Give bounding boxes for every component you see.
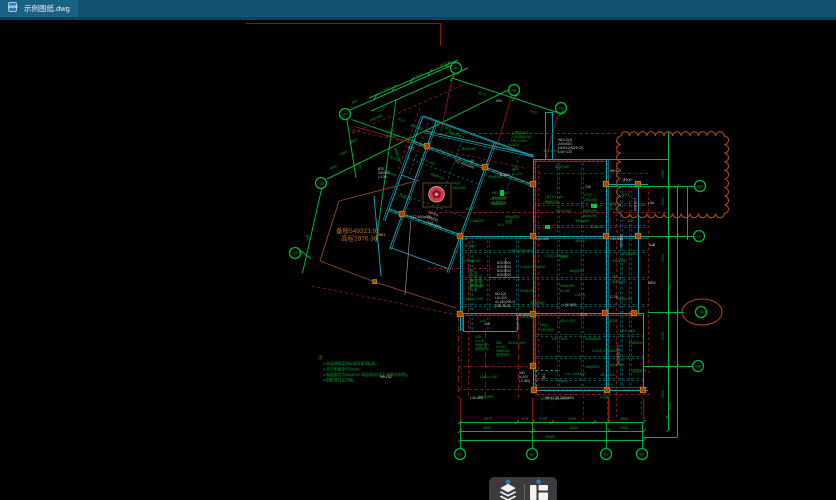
svg-text:2901: 2901 bbox=[661, 390, 665, 398]
svg-text:1500: 1500 bbox=[568, 417, 576, 421]
svg-text:决500: 决500 bbox=[622, 177, 632, 182]
svg-text:300x600: 300x600 bbox=[386, 134, 400, 138]
svg-text:4D: 4D bbox=[558, 106, 563, 111]
svg-text:B25: B25 bbox=[610, 319, 616, 323]
svg-text:240x450: 240x450 bbox=[452, 186, 466, 190]
svg-text:B8@180: B8@180 bbox=[462, 147, 476, 151]
svg-text:4873: 4873 bbox=[478, 91, 487, 97]
svg-text:1500: 1500 bbox=[339, 150, 348, 157]
svg-text:(-0.080): (-0.080) bbox=[519, 379, 530, 383]
svg-text:WKL: WKL bbox=[610, 169, 618, 173]
svg-text:4.阴影部分见详图。: 4.阴影部分见详图。 bbox=[323, 378, 357, 383]
svg-text:B-150: B-150 bbox=[465, 244, 475, 248]
svg-text:LB h=100: LB h=100 bbox=[620, 329, 636, 333]
svg-text:L6(2) 240x400: L6(2) 240x400 bbox=[510, 249, 533, 253]
svg-text:LB1 h=100: LB1 h=100 bbox=[545, 195, 563, 199]
svg-text:4F: 4F bbox=[454, 66, 459, 71]
svg-text:WKL1(5) 300x600: WKL1(5) 300x600 bbox=[545, 396, 574, 400]
svg-text:L-9: L-9 bbox=[628, 219, 633, 223]
svg-text:L5(1): L5(1) bbox=[452, 181, 460, 185]
svg-text:Φ8@180: Φ8@180 bbox=[575, 219, 590, 223]
svg-text:双层双向: 双层双向 bbox=[475, 346, 489, 351]
svg-text:Φ8@200: Φ8@200 bbox=[505, 215, 520, 219]
svg-text:B-600: B-600 bbox=[500, 173, 510, 177]
svg-text:5M: 5M bbox=[695, 364, 701, 369]
svg-text:备移549323.92: 备移549323.92 bbox=[336, 226, 380, 235]
svg-text:WB2: WB2 bbox=[648, 281, 656, 285]
svg-text:2905: 2905 bbox=[661, 332, 665, 340]
svg-text:240: 240 bbox=[585, 185, 591, 189]
svg-text:WKL5: WKL5 bbox=[575, 239, 585, 243]
svg-text:3.板配筋均为Φ8@200 双层双向(详见 结构总说明)。: 3.板配筋均为Φ8@200 双层双向(详见 结构总说明)。 bbox=[323, 372, 411, 377]
svg-text:L-5: L-5 bbox=[638, 203, 643, 207]
svg-text:1.本层结构梁顶标高同板顶标高。: 1.本层结构梁顶标高同板顶标高。 bbox=[323, 361, 379, 366]
svg-text:L10(3) 300x600: L10(3) 300x600 bbox=[520, 265, 545, 269]
svg-text:5417: 5417 bbox=[530, 109, 539, 115]
svg-text:L11 240x450: L11 240x450 bbox=[565, 372, 586, 376]
svg-text:Φ25: Φ25 bbox=[622, 193, 629, 197]
svg-text:250x500: 250x500 bbox=[584, 198, 598, 202]
svg-text:Φ8@150: Φ8@150 bbox=[430, 172, 445, 181]
svg-text:Φ10@200: Φ10@200 bbox=[508, 341, 525, 345]
svg-text:Q6: Q6 bbox=[318, 181, 324, 186]
svg-text:B2: B2 bbox=[530, 452, 536, 457]
svg-text:975: 975 bbox=[522, 417, 528, 421]
svg-text:KL8: KL8 bbox=[466, 207, 472, 211]
svg-text:L7(2): L7(2) bbox=[584, 193, 592, 197]
svg-text:B4: B4 bbox=[640, 452, 646, 457]
svg-text:L40-600: L40-600 bbox=[470, 396, 483, 400]
svg-text:LB h=100: LB h=100 bbox=[560, 319, 576, 323]
svg-text:h=100: h=100 bbox=[560, 289, 570, 293]
svg-text:240x500: 240x500 bbox=[619, 234, 623, 248]
svg-text:(240x240): (240x240) bbox=[426, 220, 442, 229]
svg-text:L12(2) 250x500: L12(2) 250x500 bbox=[592, 349, 617, 353]
svg-text:h=110: h=110 bbox=[610, 207, 620, 211]
svg-text:双层双向: 双层双向 bbox=[492, 200, 507, 205]
svg-text:LB2: LB2 bbox=[610, 202, 616, 206]
svg-text:LB4: LB4 bbox=[612, 275, 618, 279]
svg-text:B1: B1 bbox=[458, 452, 464, 457]
svg-text:C-25: C-25 bbox=[610, 295, 618, 299]
svg-text:Φ8@200: Φ8@200 bbox=[479, 275, 483, 288]
svg-text:1E: 1E bbox=[697, 234, 702, 239]
svg-text:LB2 h=110: LB2 h=110 bbox=[466, 297, 483, 301]
svg-text:L8a: L8a bbox=[648, 201, 654, 205]
svg-text:2900: 2900 bbox=[620, 426, 628, 430]
svg-text:1903: 1903 bbox=[661, 254, 665, 262]
svg-text:B8@200: B8@200 bbox=[590, 225, 604, 229]
svg-text:L40-600: L40-600 bbox=[536, 237, 549, 241]
svg-text:C8@200: C8@200 bbox=[470, 219, 484, 223]
svg-text:LB1: LB1 bbox=[512, 167, 518, 171]
svg-text:Φ8@180: Φ8@180 bbox=[612, 280, 627, 284]
svg-text:800: 800 bbox=[305, 234, 310, 241]
svg-text:Φ25: Φ25 bbox=[580, 313, 587, 317]
svg-text:L-8: L-8 bbox=[649, 243, 654, 247]
svg-text:LB h=120: LB h=120 bbox=[600, 373, 616, 377]
svg-text:LB h=100: LB h=100 bbox=[556, 209, 572, 213]
svg-text:8900: 8900 bbox=[570, 426, 578, 430]
svg-text:4E: 4E bbox=[512, 88, 517, 93]
svg-text:KZ2 600x600: KZ2 600x600 bbox=[410, 215, 431, 219]
svg-text:2903: 2903 bbox=[668, 402, 672, 410]
svg-text:L9(2): L9(2) bbox=[540, 323, 548, 327]
svg-text:Φ8@160: Φ8@160 bbox=[622, 252, 637, 256]
svg-text:20400: 20400 bbox=[545, 435, 556, 439]
svg-text:Φ8@200: Φ8@200 bbox=[628, 341, 643, 345]
svg-text:B8@200: B8@200 bbox=[570, 269, 584, 273]
svg-text:Φ8@150 B150: Φ8@150 B150 bbox=[474, 271, 478, 292]
svg-text:L1(3): L1(3) bbox=[386, 129, 394, 133]
svg-text:4575: 4575 bbox=[484, 417, 492, 421]
svg-text:Φ8@160: Φ8@160 bbox=[466, 259, 481, 263]
svg-text:B8@180: B8@180 bbox=[555, 165, 569, 169]
svg-text:L40: L40 bbox=[468, 159, 474, 163]
svg-text:h=120: h=120 bbox=[512, 172, 522, 176]
svg-text:L40+120: L40+120 bbox=[558, 150, 572, 154]
svg-text:WKL: WKL bbox=[378, 233, 386, 237]
svg-text:B-8: B-8 bbox=[498, 223, 504, 227]
svg-text:L-1: L-1 bbox=[462, 237, 467, 241]
svg-text:9600: 9600 bbox=[483, 426, 491, 430]
svg-text:2A: 2A bbox=[699, 310, 704, 315]
svg-text:注:: 注: bbox=[318, 354, 324, 361]
svg-text:L11(2): L11(2) bbox=[575, 293, 585, 297]
svg-text:1-Φ25@200: 1-Φ25@200 bbox=[616, 345, 620, 365]
svg-text:5417: 5417 bbox=[668, 282, 672, 290]
svg-text:240x400: 240x400 bbox=[369, 114, 383, 123]
svg-text:Φ8@180: Φ8@180 bbox=[612, 259, 627, 263]
svg-text:B8@200: B8@200 bbox=[545, 200, 559, 204]
svg-text:双层双向: 双层双向 bbox=[496, 352, 510, 357]
svg-text:Φ8@200 B200: Φ8@200 B200 bbox=[469, 269, 473, 290]
svg-text:B25 B200: B25 B200 bbox=[497, 273, 511, 277]
svg-text:B3: B3 bbox=[604, 452, 610, 457]
svg-text:双层双向: 双层双向 bbox=[632, 368, 647, 373]
svg-text:L13(1): L13(1) bbox=[558, 379, 568, 383]
svg-text:550: 550 bbox=[496, 99, 502, 103]
svg-text:L1(2): L1(2) bbox=[377, 106, 386, 113]
svg-text:Φ8@200: Φ8@200 bbox=[530, 301, 545, 305]
svg-text:Φ10@180: Φ10@180 bbox=[585, 337, 602, 341]
svg-text:Φ8@200: Φ8@200 bbox=[585, 365, 600, 369]
svg-text:XB1: XB1 bbox=[542, 374, 546, 380]
svg-text:(300-2040): (300-2040) bbox=[495, 304, 511, 308]
svg-text:双层: 双层 bbox=[505, 219, 513, 224]
svg-text:Q5: Q5 bbox=[292, 251, 298, 256]
svg-text:L40-600: L40-600 bbox=[563, 303, 576, 307]
svg-text:B8@200: B8@200 bbox=[583, 214, 597, 218]
svg-text:2700: 2700 bbox=[539, 417, 547, 421]
svg-text:2900: 2900 bbox=[661, 170, 665, 178]
svg-text:2901: 2901 bbox=[661, 197, 665, 205]
svg-text:KL5(2): KL5(2) bbox=[508, 143, 519, 147]
svg-text:Φ8@200: Φ8@200 bbox=[560, 284, 575, 288]
svg-text:2900: 2900 bbox=[620, 417, 628, 421]
svg-text:250x550: 250x550 bbox=[540, 328, 554, 332]
svg-text:300: 300 bbox=[351, 99, 358, 105]
svg-text:1D: 1D bbox=[697, 184, 702, 189]
svg-text:(-0.05): (-0.05) bbox=[378, 175, 387, 179]
svg-text:LB h=100: LB h=100 bbox=[552, 337, 568, 341]
svg-text:L40-600: L40-600 bbox=[516, 313, 529, 317]
svg-text:高程2976.36: 高程2976.36 bbox=[341, 234, 378, 243]
svg-text:L9(1) 240x400: L9(1) 240x400 bbox=[545, 254, 568, 258]
svg-text:L12(1): L12(1) bbox=[600, 395, 610, 399]
svg-text:L40: L40 bbox=[480, 319, 486, 323]
svg-text:2.未注明板厚均为100。: 2.未注明板厚均为100。 bbox=[323, 367, 363, 372]
svg-text:Φ8@200: Φ8@200 bbox=[492, 196, 507, 200]
svg-text:Φ8@200: Φ8@200 bbox=[520, 289, 535, 293]
svg-text:Φ8@160: Φ8@160 bbox=[583, 209, 598, 213]
svg-text:1500: 1500 bbox=[329, 164, 338, 171]
svg-text:Q7: Q7 bbox=[342, 112, 348, 117]
svg-text:B8@150: B8@150 bbox=[618, 297, 632, 301]
svg-text:LB6 h=100: LB6 h=100 bbox=[480, 375, 498, 379]
svg-text:C8@200: C8@200 bbox=[398, 193, 413, 202]
svg-text:WKL02: WKL02 bbox=[380, 375, 392, 379]
svg-text:L40-600: L40-600 bbox=[633, 198, 637, 211]
svg-text:KL3: KL3 bbox=[398, 117, 405, 123]
